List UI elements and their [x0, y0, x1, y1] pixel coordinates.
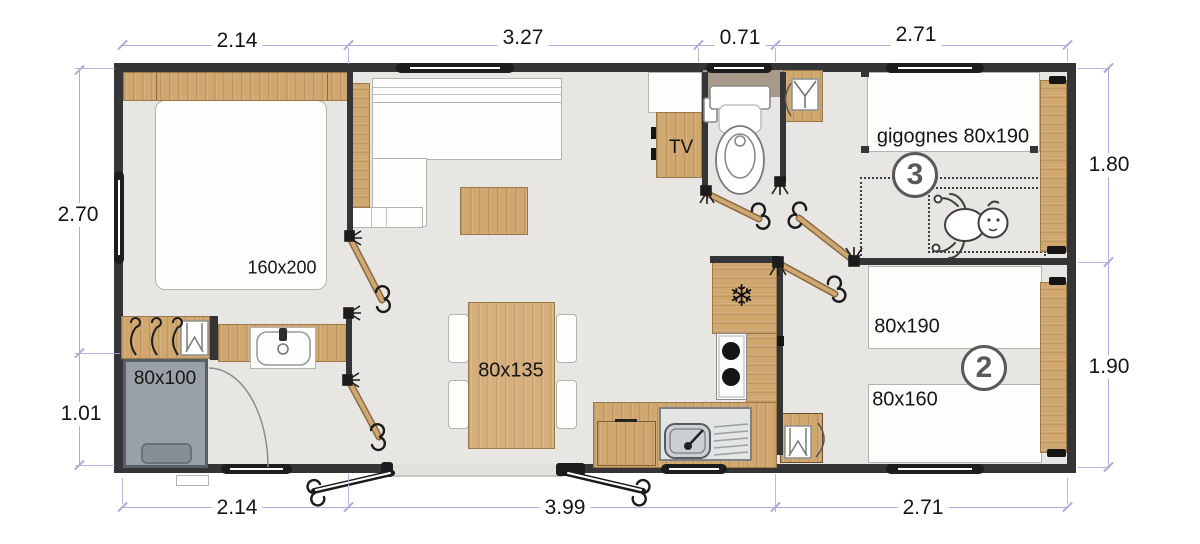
dining-chair [448, 314, 469, 363]
bed-160-label: 80x160 [872, 389, 938, 412]
wardrobe-hinge [1047, 246, 1066, 254]
dining-chair [448, 380, 469, 429]
dim-top-4: 2.71 [891, 23, 942, 47]
nesting-beds-label: gigognes 80x190 [877, 126, 1029, 149]
bedroom2-window [886, 464, 984, 474]
bedroom3-number-badge: 3 [892, 152, 938, 198]
dining-table-label: 80x135 [478, 360, 544, 383]
wc-shelf [703, 70, 783, 97]
kitchen-tall-unit [746, 333, 777, 403]
door-post [556, 463, 585, 476]
dim-top-3: 0.71 [715, 26, 766, 50]
master-bed-label: 160x200 [247, 258, 316, 279]
living-window [396, 63, 514, 73]
wardrobe-hinge [1047, 449, 1066, 457]
wall-stub [861, 70, 869, 77]
bathroom-wall-stub [210, 316, 218, 360]
dim-line-right [1108, 68, 1109, 467]
tv-speaker [651, 148, 656, 160]
wardrobe-hinge [1049, 76, 1066, 84]
wardrobe-hinge [1049, 277, 1066, 285]
vanity-unit [250, 327, 316, 369]
wc-wall-left [702, 72, 708, 192]
bathroom-window [221, 464, 292, 474]
dim-left-2: 1.01 [56, 402, 107, 426]
tv-speaker [651, 127, 656, 139]
dim-bottom-3: 2.71 [898, 496, 949, 520]
bathroom-wardrobe [121, 316, 210, 359]
shelf-under-wardrobe [352, 207, 423, 228]
dim-bottom-2: 3.99 [540, 496, 591, 520]
bedroom1-window [114, 171, 124, 264]
wc-window [706, 63, 772, 73]
bedroom1-wall [347, 72, 353, 232]
stove [716, 333, 747, 400]
entrance-step [176, 475, 209, 486]
dim-left-1: 2.70 [53, 203, 104, 227]
dim-right-1: 1.80 [1084, 153, 1135, 177]
shower-label: 80x100 [134, 368, 196, 390]
tv-upper-cabinet [648, 72, 702, 113]
sofa-back [372, 78, 562, 104]
water-heater-cabinet [780, 413, 823, 463]
living-wardrobe [352, 83, 370, 208]
dining-chair [556, 380, 577, 429]
trundle-bed-outline-inner [928, 187, 1046, 253]
headboard-shelf [123, 72, 350, 101]
entrance-door-left [314, 473, 392, 491]
dim-right-2: 1.90 [1084, 355, 1135, 379]
wall-stub [1030, 146, 1038, 153]
wall-stub [861, 146, 869, 153]
bedroom3-wardrobe [1040, 80, 1067, 252]
wc-corner-basin-cabinet [783, 70, 823, 122]
rooms-divider-wall [853, 258, 1067, 265]
bedroom2-number-badge: 2 [961, 345, 1007, 391]
drawer-handle [615, 419, 637, 422]
bed-190-label: 80x190 [874, 316, 940, 339]
kitchen-drawer-unit [597, 421, 656, 466]
door-post [381, 462, 393, 477]
shower-tray [141, 443, 192, 464]
wc-wall-right [780, 72, 786, 182]
kitchen-sink-unit [659, 407, 752, 461]
kitchen-window [661, 464, 727, 474]
door-handle-nub [777, 336, 784, 346]
bathroom-wall [346, 312, 352, 382]
bedroom2-wardrobe [1040, 282, 1067, 453]
dim-bottom-1: 2.14 [212, 496, 263, 520]
entrance-opening [390, 464, 563, 477]
sofa-seat [372, 102, 562, 160]
dim-top-1: 2.14 [212, 29, 263, 53]
dining-chair [556, 314, 577, 363]
floor-plan: ❄ [0, 0, 1200, 544]
kitchen-hall-wall [777, 258, 783, 455]
dim-top-2: 3.27 [498, 26, 549, 50]
bedroom3-window [886, 63, 984, 73]
coffee-table [460, 187, 528, 235]
tv-label: TV [669, 137, 693, 159]
fridge-snowflake-icon: ❄ [729, 282, 754, 312]
fridge-top-wall [710, 256, 779, 263]
